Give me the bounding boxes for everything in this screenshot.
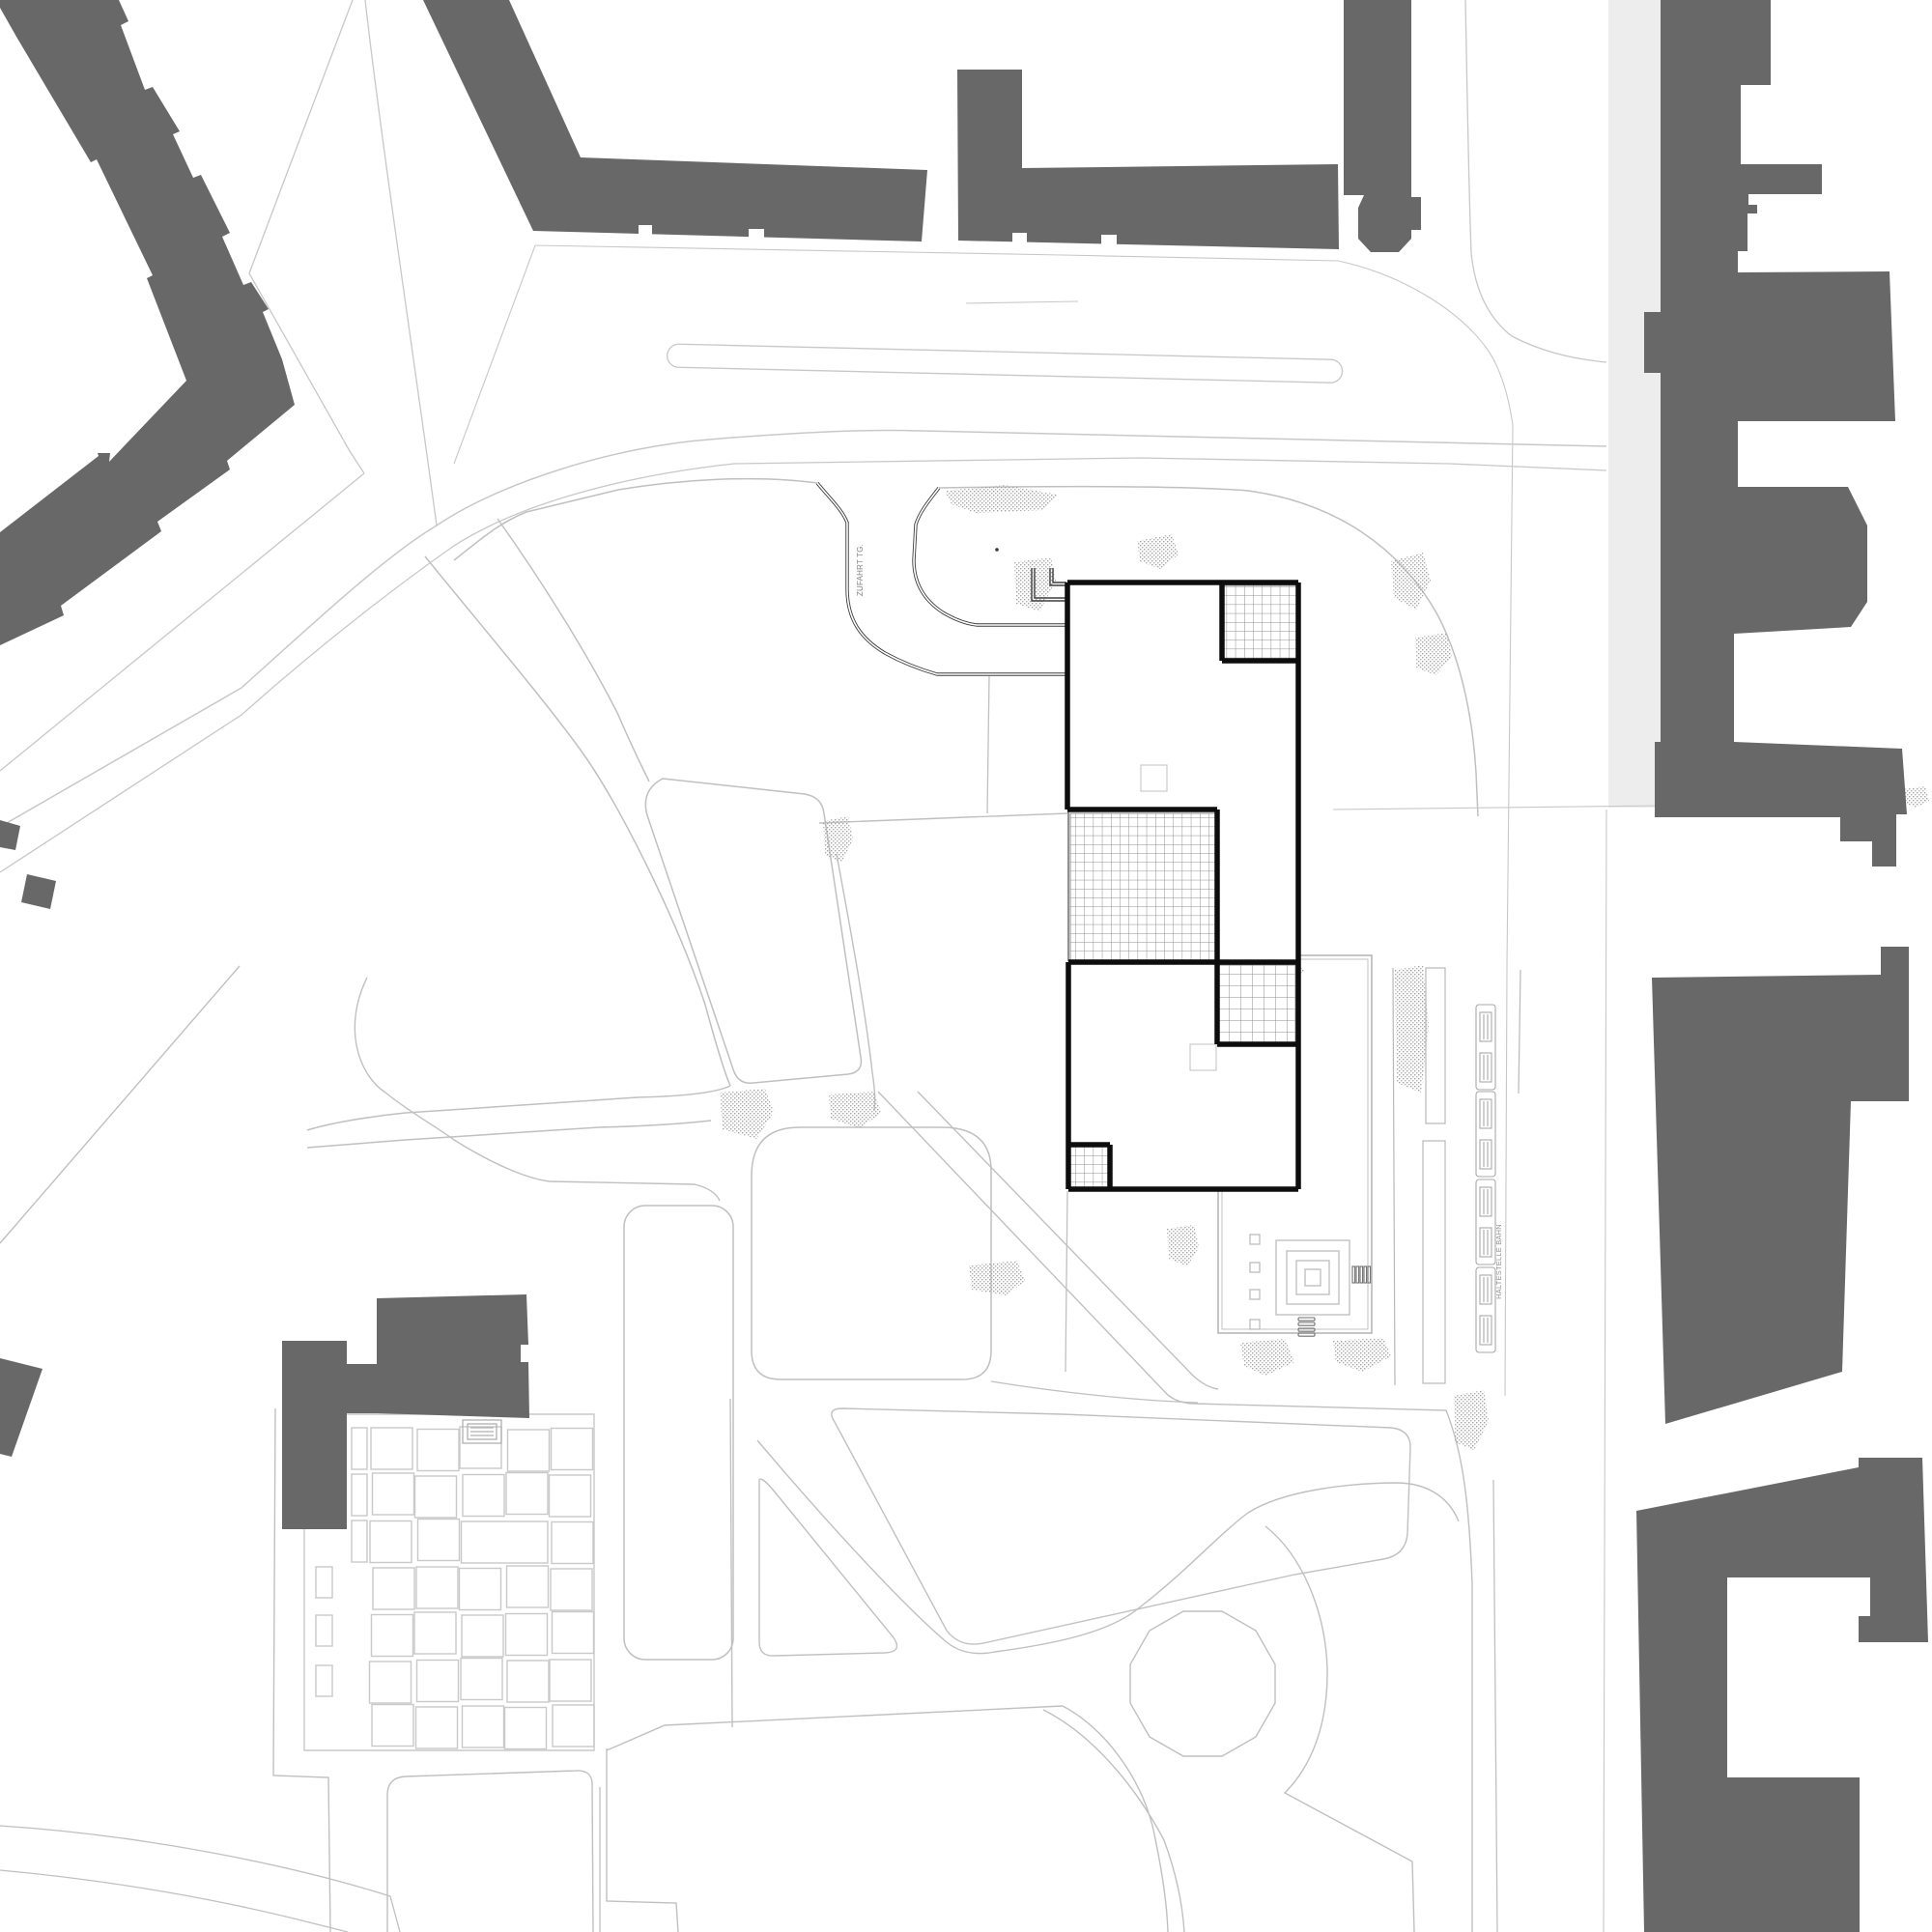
svg-text:ZUFAHRT TG.: ZUFAHRT TG.: [856, 544, 865, 596]
svg-text:HALTESTELLE BAHN: HALTESTELLE BAHN: [1494, 1224, 1503, 1299]
